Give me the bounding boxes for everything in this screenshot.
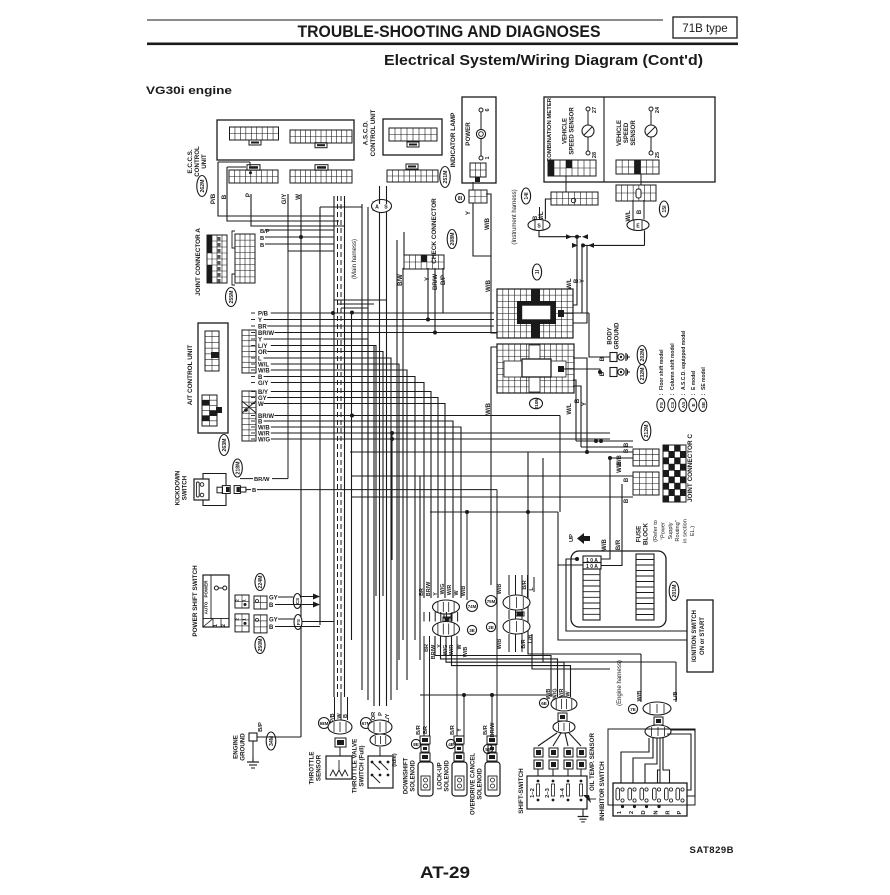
svg-text:B/R: B/R: [616, 539, 622, 550]
svg-text:B: B: [637, 209, 643, 214]
svg-text:B: B: [624, 442, 630, 447]
svg-text:8E: 8E: [413, 742, 419, 747]
svg-text:IGNITION SWITCH: IGNITION SWITCH: [692, 610, 698, 662]
svg-text:BR: BR: [419, 588, 425, 596]
svg-text:BLOCK: BLOCK: [643, 522, 650, 545]
svg-text:W/B: W/B: [617, 461, 623, 473]
svg-text:AUTO: AUTO: [204, 601, 209, 614]
svg-text:75M: 75M: [487, 599, 496, 604]
svg-text:71B type: 71B type: [682, 23, 727, 35]
svg-text:CS: CS: [670, 402, 675, 408]
svg-text:GY: GY: [269, 618, 278, 624]
svg-text:15I: 15I: [662, 205, 668, 213]
svg-text:232M: 232M: [640, 368, 646, 381]
svg-text:224M: 224M: [258, 576, 264, 589]
svg-text:B: B: [343, 714, 349, 718]
svg-text:250M: 250M: [258, 639, 264, 652]
svg-text:G/Y: G/Y: [258, 381, 268, 387]
svg-text:B: B: [269, 625, 274, 631]
svg-text:CHECK CONNECTOR: CHECK CONNECTOR: [431, 198, 438, 264]
svg-text:SOLENOID: SOLENOID: [478, 768, 484, 800]
svg-text:Supply: Supply: [668, 522, 674, 539]
svg-text:263M: 263M: [222, 439, 228, 452]
svg-text:S: S: [384, 205, 388, 211]
svg-text:SOLENOID: SOLENOID: [411, 760, 417, 792]
svg-text:24: 24: [655, 106, 661, 113]
svg-text:1: 1: [485, 156, 491, 159]
svg-text:“Power: “Power: [660, 522, 666, 540]
svg-text:25: 25: [655, 152, 661, 158]
svg-text:SWITCH: SWITCH: [182, 475, 189, 500]
svg-text:DOWNSHIFT: DOWNSHIFT: [404, 758, 410, 795]
svg-text:P/B: P/B: [258, 312, 269, 318]
svg-text:UP: UP: [569, 534, 575, 542]
svg-text:W/B: W/B: [461, 586, 467, 597]
svg-text:INHIBITOR SWITCH: INHIBITOR SWITCH: [599, 761, 606, 821]
svg-text:AT-29: AT-29: [420, 864, 470, 882]
svg-text:A/T CONTROL UNIT: A/T CONTROL UNIT: [187, 345, 194, 405]
svg-text:W/R: W/R: [447, 585, 453, 596]
svg-text:212M: 212M: [644, 425, 650, 438]
svg-text::: :: [670, 394, 676, 396]
svg-text:ON or START: ON or START: [700, 617, 706, 655]
svg-text:FUSE: FUSE: [636, 526, 643, 543]
svg-text:OIL TEMP. SENSOR: OIL TEMP. SENSOR: [589, 733, 596, 791]
svg-text:B: B: [624, 498, 630, 503]
svg-text:27: 27: [592, 107, 598, 113]
svg-text:UNIT: UNIT: [201, 154, 208, 169]
svg-text:FS: FS: [296, 619, 301, 625]
svg-text:3E: 3E: [469, 628, 475, 633]
svg-text:SENSOR: SENSOR: [631, 120, 637, 146]
svg-text::: :: [659, 394, 665, 396]
svg-text:B: B: [260, 236, 264, 242]
svg-text:2E: 2E: [488, 625, 494, 630]
svg-text:BR/W: BR/W: [490, 722, 496, 738]
svg-text:3–4: 3–4: [560, 787, 566, 797]
svg-text:255M: 255M: [229, 291, 235, 304]
svg-text:W: W: [258, 402, 264, 408]
svg-text:A.S.C.D.: A.S.C.D.: [362, 121, 369, 146]
svg-text:OVERDRIVE CANCEL: OVERDRIVE CANCEL: [471, 753, 477, 815]
svg-text:ENGINE: ENGINE: [233, 735, 240, 759]
svg-text:Column shift model: Column shift model: [670, 343, 676, 390]
svg-text:VG30i engine: VG30i engine: [146, 85, 232, 97]
svg-text:Y: Y: [258, 338, 262, 344]
svg-text:KICKDOWN: KICKDOWN: [175, 470, 182, 505]
svg-text:VEHICLE: VEHICLE: [563, 118, 569, 144]
svg-text:POWER SHIFT SWITCH: POWER SHIFT SWITCH: [192, 565, 199, 637]
svg-text:BR: BR: [258, 325, 267, 331]
svg-text:GROUND: GROUND: [615, 322, 621, 349]
svg-text:SE model: SE model: [701, 367, 707, 390]
svg-text:JOINT CONNECTOR A: JOINT CONNECTOR A: [195, 228, 202, 296]
svg-text:1–2: 1–2: [530, 788, 536, 798]
svg-text:Routing”: Routing”: [675, 520, 681, 541]
svg-text:14I: 14I: [524, 192, 530, 200]
svg-text:W/B: W/B: [637, 691, 643, 702]
svg-text:EL.): EL.): [690, 526, 696, 536]
svg-text:THROTTLE: THROTTLE: [309, 752, 316, 785]
svg-text:2: 2: [629, 811, 635, 814]
svg-text:VEHICLE: VEHICLE: [617, 120, 623, 146]
svg-text:4E: 4E: [448, 742, 454, 747]
svg-text:E: E: [691, 403, 696, 406]
svg-text::: :: [681, 394, 687, 396]
svg-text:COMBINATION METER: COMBINATION METER: [547, 97, 553, 162]
svg-text:BR/W: BR/W: [254, 477, 270, 483]
svg-text:POWER: POWER: [465, 122, 472, 146]
svg-text:SOLENOID: SOLENOID: [445, 760, 451, 792]
svg-text:GY: GY: [269, 596, 278, 602]
svg-text:E.C.C.S.: E.C.C.S.: [187, 149, 194, 173]
svg-text:1I: 1I: [535, 269, 541, 274]
svg-text:B/R: B/R: [483, 725, 489, 735]
svg-text:210M: 210M: [534, 398, 539, 410]
svg-text:POWER: POWER: [204, 580, 209, 598]
svg-text:in section: in section: [683, 519, 689, 543]
svg-text:W/G: W/G: [440, 584, 446, 595]
svg-text:N: N: [654, 810, 660, 814]
svg-text:P: P: [677, 810, 683, 814]
svg-text:B: B: [574, 398, 581, 403]
svg-text:6E: 6E: [541, 701, 547, 706]
svg-text:L/B: L/B: [673, 691, 679, 700]
svg-text:(Refer to: (Refer to: [653, 520, 659, 542]
svg-text:Y: Y: [258, 318, 262, 324]
svg-text:AS: AS: [681, 402, 686, 408]
svg-text:(Instrument harness): (Instrument harness): [512, 189, 518, 244]
svg-text::: :: [701, 394, 707, 396]
svg-text:SWITCH (Full): SWITCH (Full): [359, 745, 366, 786]
svg-text:B/P: B/P: [258, 722, 264, 732]
svg-text:SPEED SENSOR: SPEED SENSOR: [570, 107, 576, 155]
svg-text:1: 1: [213, 624, 219, 627]
svg-text:OR: OR: [258, 350, 268, 356]
svg-text:W/L: W/L: [626, 210, 632, 221]
svg-text:W/L: W/L: [566, 403, 573, 415]
svg-text:B: B: [624, 477, 630, 482]
svg-text:W: W: [566, 691, 572, 697]
svg-text:B: B: [269, 603, 274, 609]
svg-text:W/B: W/B: [546, 689, 552, 700]
svg-text:SE: SE: [701, 402, 706, 408]
svg-text:68M: 68M: [320, 721, 329, 726]
svg-text:G/Y: G/Y: [281, 193, 288, 205]
svg-text:W/B: W/B: [258, 369, 270, 375]
svg-text:Floor shift model: Floor shift model: [659, 349, 665, 390]
svg-text:CONTROL: CONTROL: [194, 146, 201, 177]
svg-text:251M: 251M: [443, 171, 449, 184]
svg-text:FS: FS: [659, 402, 664, 408]
svg-text:SAT829B: SAT829B: [689, 845, 734, 856]
svg-text:Y: Y: [433, 592, 439, 596]
svg-text:L/B: L/B: [528, 635, 534, 644]
svg-text:(Engine harness): (Engine harness): [617, 660, 623, 706]
svg-text:GROUND: GROUND: [240, 733, 247, 761]
svg-text:CS: CS: [295, 598, 300, 604]
svg-text:JOINT CONNECTOR C: JOINT CONNECTOR C: [687, 434, 694, 502]
svg-text:2: 2: [221, 624, 227, 627]
svg-text:A.S.C.D. equipped model: A.S.C.D. equipped model: [681, 330, 687, 390]
svg-text:E model: E model: [691, 370, 697, 390]
svg-text:W/B: W/B: [484, 217, 491, 230]
svg-text:SPEED: SPEED: [624, 122, 630, 143]
svg-text:BR/W: BR/W: [433, 274, 439, 290]
svg-text::: :: [691, 394, 697, 396]
svg-text:W/B: W/B: [497, 639, 503, 650]
svg-text:262M: 262M: [200, 180, 206, 193]
svg-text:SENSOR: SENSOR: [316, 754, 323, 781]
svg-text:B: B: [252, 488, 256, 494]
svg-text:BODY: BODY: [608, 327, 614, 344]
svg-text:6: 6: [485, 108, 491, 111]
svg-text:7E: 7E: [630, 707, 636, 712]
svg-text:Electrical System/Wiring Diagr: Electrical System/Wiring Diagram (Cont'd…: [384, 53, 703, 69]
svg-text:W/L: W/L: [567, 278, 573, 289]
svg-text:LOCK-UP: LOCK-UP: [438, 762, 444, 789]
svg-text:208M: 208M: [450, 233, 456, 246]
svg-text:Y: Y: [580, 279, 586, 283]
svg-text:(Main harness): (Main harness): [352, 239, 358, 279]
svg-text:218M: 218M: [235, 462, 241, 475]
svg-text:D: D: [641, 810, 647, 814]
svg-text:THROTTLE VALVE: THROTTLE VALVE: [352, 739, 359, 793]
svg-text:W/G: W/G: [258, 438, 270, 444]
svg-text:B: B: [599, 356, 606, 361]
svg-text:INDICATOR LAMP: INDICATOR LAMP: [450, 112, 457, 168]
svg-text:B/R: B/R: [416, 725, 422, 735]
svg-text:201M: 201M: [672, 585, 678, 598]
svg-text:P: P: [378, 712, 384, 716]
svg-text:B/P: B/P: [441, 275, 447, 285]
svg-text:B/R: B/R: [450, 725, 456, 735]
svg-text:P/B: P/B: [210, 193, 217, 204]
svg-text:8I: 8I: [458, 196, 463, 202]
svg-text:A: A: [375, 205, 379, 211]
svg-text:BR/W: BR/W: [426, 581, 432, 596]
svg-text:2–3: 2–3: [545, 787, 551, 797]
svg-text:28: 28: [592, 152, 598, 158]
svg-text:BR/W: BR/W: [258, 331, 274, 337]
svg-text:B: B: [260, 243, 264, 249]
svg-text:Y: Y: [457, 728, 463, 732]
svg-text:CONTROL UNIT: CONTROL UNIT: [370, 109, 377, 156]
svg-text:OR: OR: [371, 712, 377, 720]
svg-text:SHIFT-SWITCH: SHIFT-SWITCH: [518, 768, 525, 814]
svg-text:74M: 74M: [468, 604, 477, 609]
svg-text:W/B: W/B: [602, 539, 608, 551]
svg-text:W/B: W/B: [497, 584, 503, 595]
svg-text:TROUBLE-SHOOTING AND DIAGNOSES: TROUBLE-SHOOTING AND DIAGNOSES: [298, 23, 601, 41]
svg-text:202M: 202M: [640, 349, 646, 362]
